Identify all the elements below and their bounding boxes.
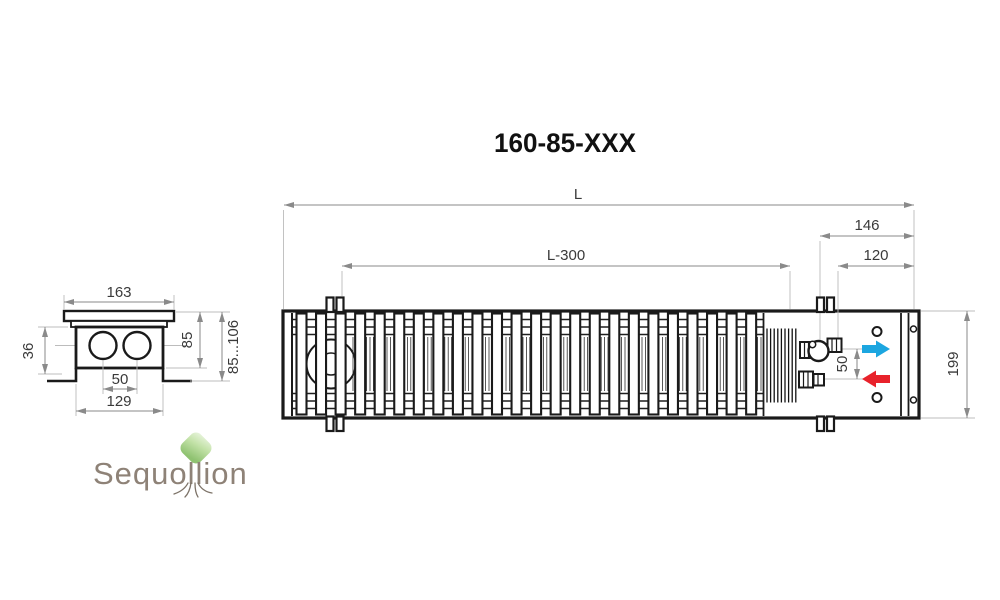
grille-slat — [648, 314, 658, 415]
dim-label-pipe-spacing-section: 50 — [112, 371, 129, 388]
grille-slat — [316, 314, 326, 415]
grille-slat — [355, 314, 365, 415]
grille-slat — [609, 314, 619, 415]
grille-slat — [531, 314, 541, 415]
grille-slat — [629, 314, 639, 415]
mounting-bracket-left — [47, 368, 76, 381]
dimension-height-range: 85...106 — [190, 312, 242, 381]
valve-bottom — [799, 372, 824, 388]
technical-drawing: 160-85-XXX 163 36 85 — [0, 0, 1000, 600]
dim-label-grille-length: L-300 — [547, 247, 585, 264]
dim-label-bottom-width: 129 — [106, 393, 131, 410]
grille-slat — [472, 314, 482, 415]
page-title: 160-85-XXX — [494, 128, 636, 158]
grille-slat — [551, 314, 561, 415]
dim-label-top-width: 163 — [106, 284, 131, 301]
dimension-inlet-depth: 36 — [20, 327, 68, 374]
dim-label-inlet-depth: 36 — [20, 343, 37, 360]
grille-slat — [727, 314, 737, 415]
logo: Sequollion — [93, 430, 248, 497]
mounting-bracket-right — [163, 368, 192, 381]
plan-view: L L-300 146 120 199 50 — [283, 186, 975, 431]
dim-label-connection-offset: 120 — [863, 247, 888, 264]
brand-text: Sequollion — [93, 456, 248, 491]
pipe-left — [90, 332, 117, 359]
dimension-body-height: 85 — [166, 312, 230, 368]
dim-label-height-range: 85...106 — [225, 320, 242, 374]
screw-hole-top — [873, 327, 882, 336]
dim-label-total-length: L — [574, 186, 582, 203]
section-view: 163 36 85 85...106 50 — [20, 284, 242, 416]
convector-cap — [64, 311, 174, 321]
dim-label-body-height: 85 — [179, 332, 196, 349]
grille-slat — [394, 314, 404, 415]
grille-slat — [414, 314, 424, 415]
grille-slat — [746, 314, 756, 415]
dimension-connection-offset: 120 — [838, 247, 914, 266]
pipe-right — [124, 332, 151, 359]
dim-label-body-width: 199 — [945, 351, 962, 376]
grille-slat — [433, 314, 443, 415]
dimension-body-width: 199 — [945, 311, 967, 418]
dim-label-pipe-spacing-plan: 50 — [834, 356, 851, 373]
grille-slat — [492, 314, 502, 415]
dimension-top-width: 163 — [64, 284, 174, 310]
grille-slat — [375, 314, 385, 415]
dim-label-end-section: 146 — [854, 217, 879, 234]
screw-hole-bottom — [873, 393, 882, 402]
grille-slat — [336, 314, 346, 415]
grille-slat — [297, 314, 307, 415]
dimension-total-length: L — [284, 186, 914, 205]
grille-slat — [590, 314, 600, 415]
grille-slat — [512, 314, 522, 415]
grille-slat — [668, 314, 678, 415]
dimension-end-section: 146 — [820, 217, 914, 236]
grille-slat — [688, 314, 698, 415]
grille-slat — [570, 314, 580, 415]
grille-slat — [707, 314, 717, 415]
dimension-grille-length: L-300 — [342, 247, 790, 266]
grille-slat — [453, 314, 463, 415]
